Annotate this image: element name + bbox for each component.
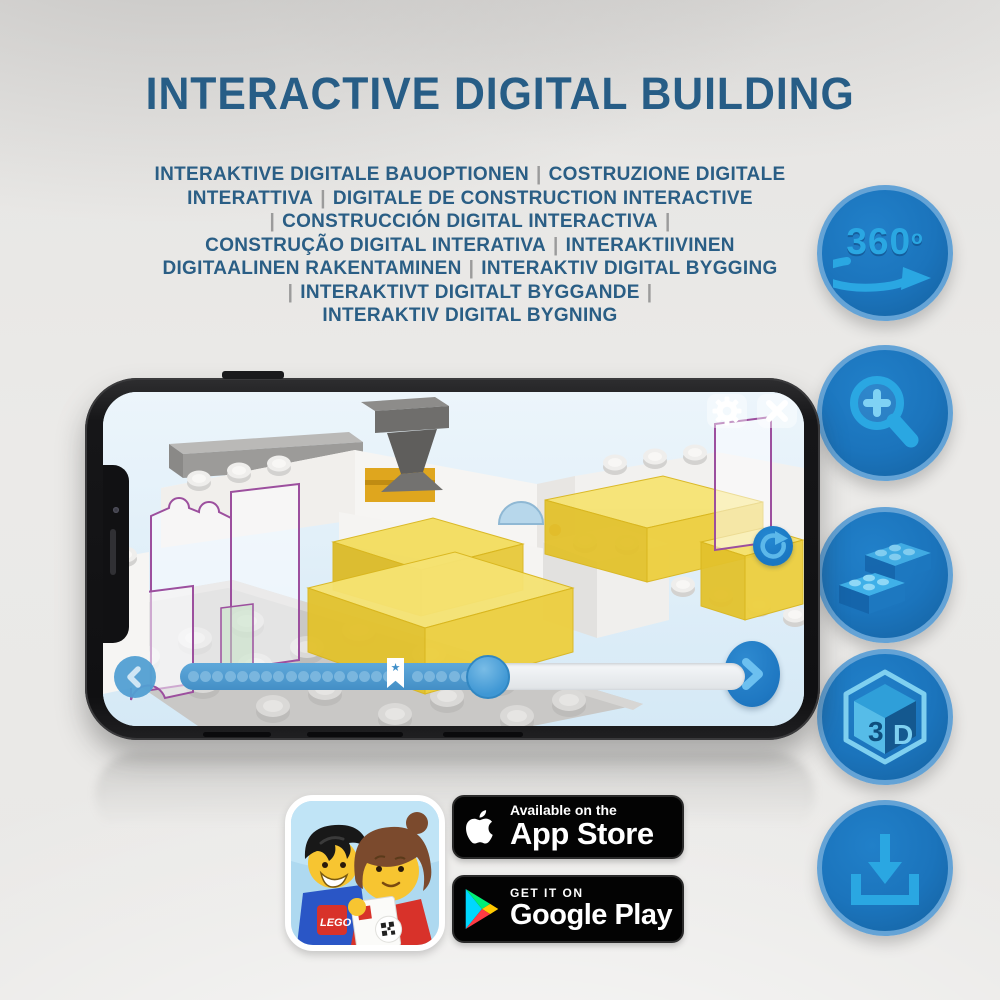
phone-port — [307, 732, 403, 737]
slider-handle[interactable] — [466, 655, 510, 699]
phone-port — [443, 732, 523, 737]
digital-bricks-icon — [817, 507, 953, 643]
svg-text:LEGO: LEGO — [320, 917, 352, 929]
apple-icon — [454, 807, 510, 847]
zoom-in-icon — [817, 345, 953, 481]
phone-mockup: ★ — [85, 378, 820, 740]
google-play-badge[interactable]: GET IT ON Google Play — [452, 875, 684, 943]
download-icon — [817, 800, 953, 936]
close-button[interactable] — [757, 394, 797, 428]
google-play-icon — [454, 889, 510, 929]
phone-side-button — [222, 371, 284, 379]
app-store-badge[interactable]: Available on the App Store — [452, 795, 684, 859]
360-label: 360o — [846, 224, 923, 257]
settings-button[interactable] — [707, 394, 747, 428]
speaker-grille — [110, 529, 116, 575]
360-arrow — [833, 257, 937, 293]
app-store-label: App Store — [510, 818, 654, 851]
slider-fill — [180, 663, 502, 690]
subtitle-translations: INTERAKTIVE DIGITALE BAUOPTIONEN|COSTRUZ… — [60, 163, 880, 328]
svg-text:D: D — [893, 719, 913, 750]
rotate-model-button[interactable] — [753, 526, 793, 566]
gear-icon — [712, 396, 742, 426]
3d-view-icon: 3 D — [817, 649, 953, 785]
rotate-icon — [757, 530, 789, 562]
svg-text:3: 3 — [868, 716, 884, 747]
page-title: INTERACTIVE DIGITAL BUILDING — [0, 68, 1000, 120]
chevron-left-icon — [122, 664, 148, 690]
front-camera — [113, 507, 119, 513]
app-screen: ★ — [103, 392, 804, 726]
google-play-label: Google Play — [510, 900, 672, 930]
phone-notch — [103, 465, 129, 643]
360-rotation-icon: 360o — [817, 185, 953, 321]
build-progress-slider[interactable]: ★ — [180, 663, 745, 690]
lego-app-icon[interactable]: LEGO — [285, 795, 445, 951]
close-icon — [765, 399, 789, 423]
lego-marketing-graphic: INTERACTIVE DIGITAL BUILDING INTERAKTIVE… — [0, 0, 1000, 1000]
phone-port — [203, 732, 271, 737]
previous-step-button[interactable] — [114, 656, 156, 698]
